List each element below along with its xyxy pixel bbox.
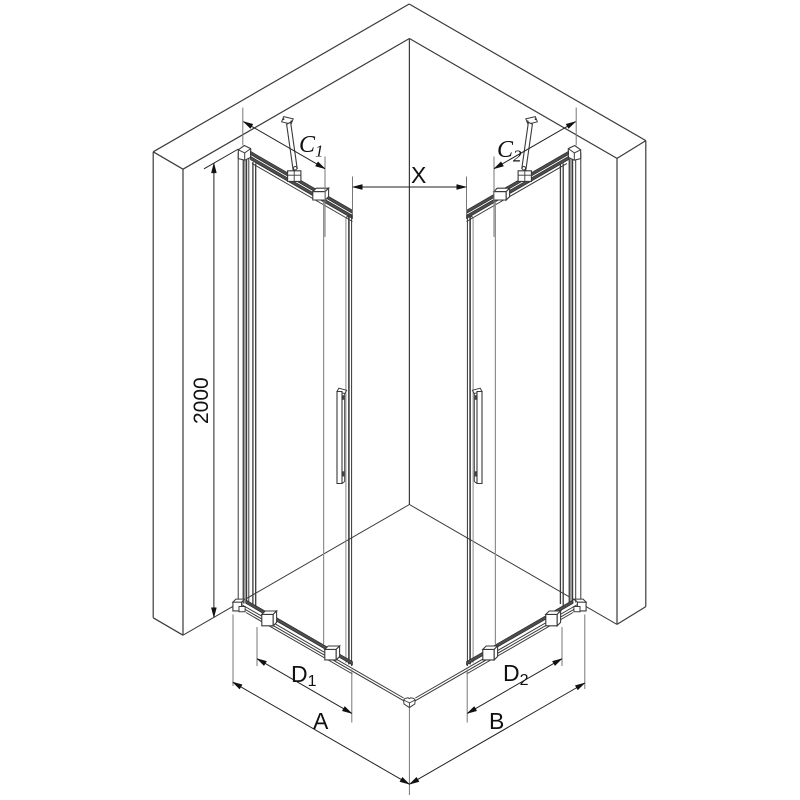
svg-text:X: X bbox=[411, 162, 426, 188]
svg-text:A: A bbox=[313, 708, 329, 734]
svg-text:2000: 2000 bbox=[190, 377, 213, 424]
svg-text:B: B bbox=[489, 708, 504, 734]
